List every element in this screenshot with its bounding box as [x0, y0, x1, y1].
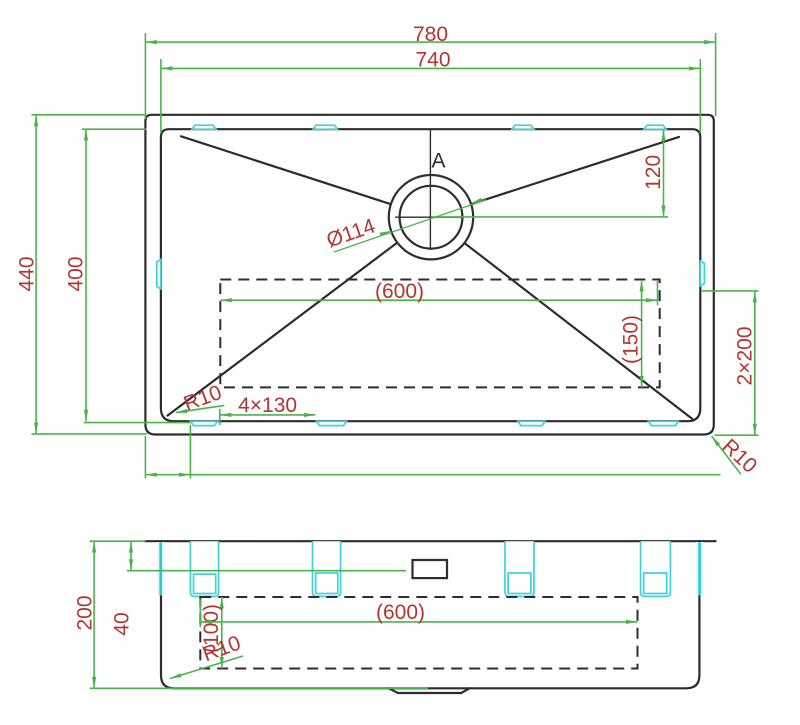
- svg-text:400: 400: [65, 256, 88, 291]
- svg-text:4×130: 4×130: [238, 394, 297, 417]
- svg-text:A: A: [431, 150, 445, 173]
- svg-text:(150): (150): [620, 315, 643, 364]
- svg-text:440: 440: [16, 256, 39, 291]
- svg-text:40: 40: [111, 612, 134, 635]
- svg-text:740: 740: [415, 48, 450, 71]
- svg-text:2×200: 2×200: [734, 327, 757, 386]
- svg-text:(600): (600): [376, 601, 425, 624]
- svg-text:(600): (600): [375, 280, 424, 303]
- svg-text:200: 200: [74, 595, 97, 630]
- svg-text:780: 780: [413, 23, 448, 46]
- svg-text:120: 120: [642, 155, 665, 190]
